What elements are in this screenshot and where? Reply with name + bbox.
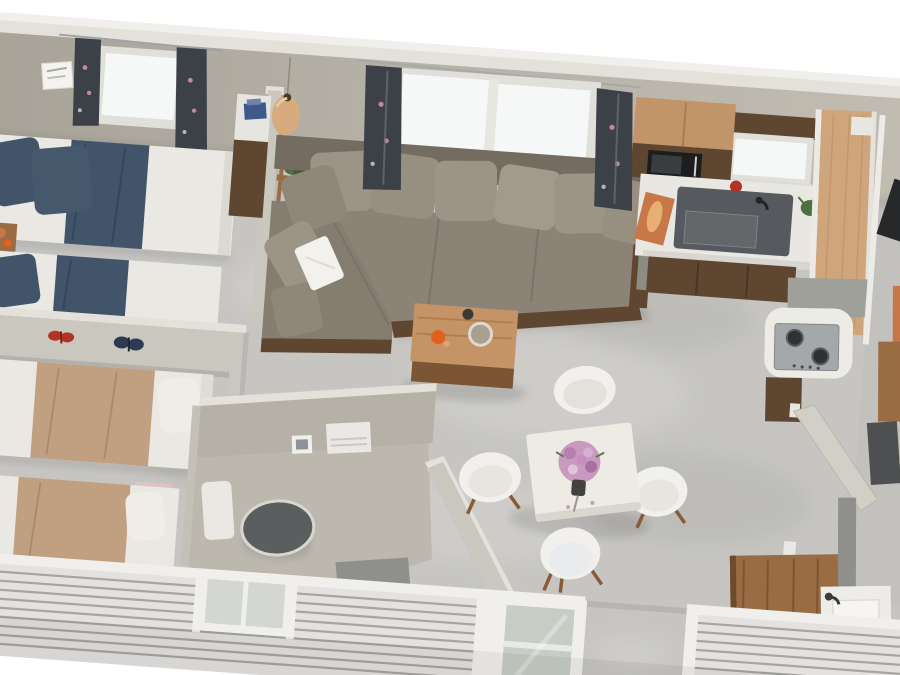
kitchen-window	[722, 112, 819, 191]
vase	[571, 479, 586, 496]
dark-object	[867, 421, 900, 485]
single-bed-tan-1	[0, 357, 214, 476]
floorplan-render	[0, 0, 900, 675]
single-bed-blue-1	[0, 132, 238, 261]
corner-nightstand	[0, 222, 17, 256]
burner	[812, 348, 828, 364]
sink-counter	[633, 173, 828, 271]
wall-boiler	[326, 422, 371, 454]
pillow	[0, 253, 41, 309]
burner	[787, 330, 803, 346]
pillow	[30, 145, 93, 216]
cistern	[201, 481, 235, 541]
upper-cabinets	[630, 97, 736, 184]
floorplan-svg	[0, 0, 900, 675]
gray-partition	[838, 498, 856, 594]
vent-square	[292, 435, 313, 454]
white-top-box	[851, 117, 874, 136]
bedroom-twin-blue	[0, 132, 238, 326]
bowl	[469, 322, 493, 346]
scene	[0, 12, 900, 675]
wall-art	[41, 62, 73, 90]
pillow	[125, 491, 166, 541]
siding-window	[192, 572, 298, 639]
